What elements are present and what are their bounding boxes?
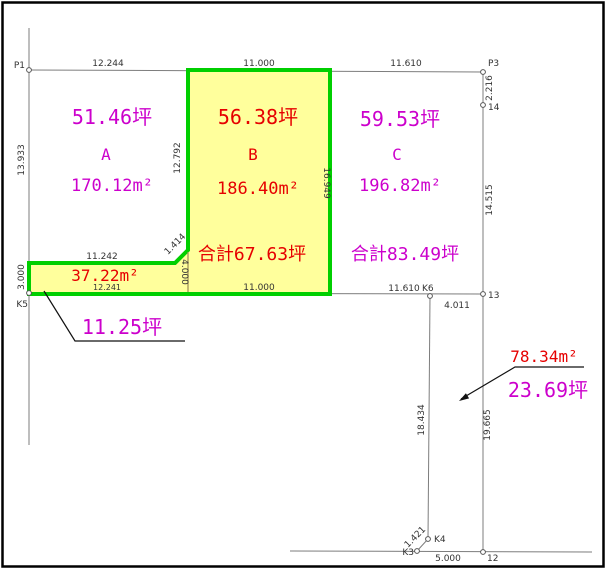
detached-tsubo: 23.69坪	[508, 378, 588, 402]
strip-tsubo: 11.25坪	[82, 315, 162, 339]
plot-a-letter: A	[101, 145, 111, 164]
point-label-13: 13	[488, 291, 499, 301]
detached-leader-arrowhead-icon	[459, 393, 469, 401]
survey-point-k6	[428, 294, 433, 299]
dim-top-segment-3: 11.610	[390, 59, 422, 69]
plot-c-tsubo: 59.53坪	[360, 107, 440, 131]
dim-right-segment-2: 14.515	[485, 184, 495, 216]
survey-point-13	[481, 292, 486, 297]
dim-top-segment-2: 11.000	[243, 59, 275, 69]
plot-b-tsubo: 56.38坪	[218, 105, 298, 129]
total-right: 合計83.49坪	[351, 244, 459, 265]
point-label-14: 14	[488, 103, 500, 113]
survey-diagram: P112.24411.00011.610P32.2161414.5151313.…	[0, 0, 606, 569]
k6-vertical-line	[428, 296, 430, 539]
dim-left-segment-1: 13.933	[17, 144, 27, 176]
point-label-k5: K5	[16, 300, 28, 310]
dim-k6-vertical: 18.434	[417, 404, 427, 436]
survey-point-p1	[27, 68, 32, 73]
plot-b-letter: B	[248, 145, 258, 164]
dim-k3-k4-diagonal: 1.421	[403, 525, 428, 550]
plot-a-tsubo: 51.46坪	[72, 105, 152, 129]
survey-point-12	[481, 550, 486, 555]
dim-top-segment-1: 12.244	[92, 59, 124, 69]
point-label-p3: P3	[488, 59, 499, 69]
point-label-k6: K6	[422, 284, 434, 294]
dim-ab-divider: 12.792	[173, 142, 183, 174]
strip-area-m2: 37.22m²	[71, 266, 138, 285]
dim-bottom-segment-2: 11.000	[243, 283, 275, 293]
plot-a-area: 170.12m²	[71, 176, 153, 196]
total-left: 合計67.63坪	[198, 244, 306, 265]
plot-b-area: 186.40m²	[217, 179, 299, 199]
dim-strip-divider: 4.000	[179, 259, 189, 285]
dim-bottom-segment-3: 11.610	[388, 284, 420, 294]
dim-strip-top: 11.242	[86, 252, 118, 262]
survey-point-k3	[415, 549, 420, 554]
dim-right-segment-1: 2.216	[485, 75, 495, 101]
detached-area-m2: 78.34m²	[510, 347, 577, 366]
dim-bc-divider: 16.949	[321, 167, 331, 199]
diagram-svg: P112.24411.00011.610P32.2161414.5151313.…	[0, 0, 606, 569]
point-label-12: 12	[487, 554, 498, 564]
point-label-k4: K4	[434, 535, 446, 545]
dim-right-segment-3: 19.665	[483, 409, 493, 441]
dim-k6-to-13: 4.011	[444, 301, 470, 311]
dim-bottom-road: 5.000	[435, 554, 461, 564]
bottom-road-line	[290, 551, 592, 552]
plot-c-letter: C	[392, 145, 402, 164]
survey-point-p3	[481, 70, 486, 75]
survey-point-14	[481, 103, 486, 108]
survey-point-k4	[426, 537, 431, 542]
dim-left-segment-2: 3.000	[17, 264, 27, 290]
point-label-p1: P1	[14, 61, 25, 71]
plot-c-area: 196.82m²	[359, 176, 441, 196]
survey-point-k5	[27, 291, 32, 296]
